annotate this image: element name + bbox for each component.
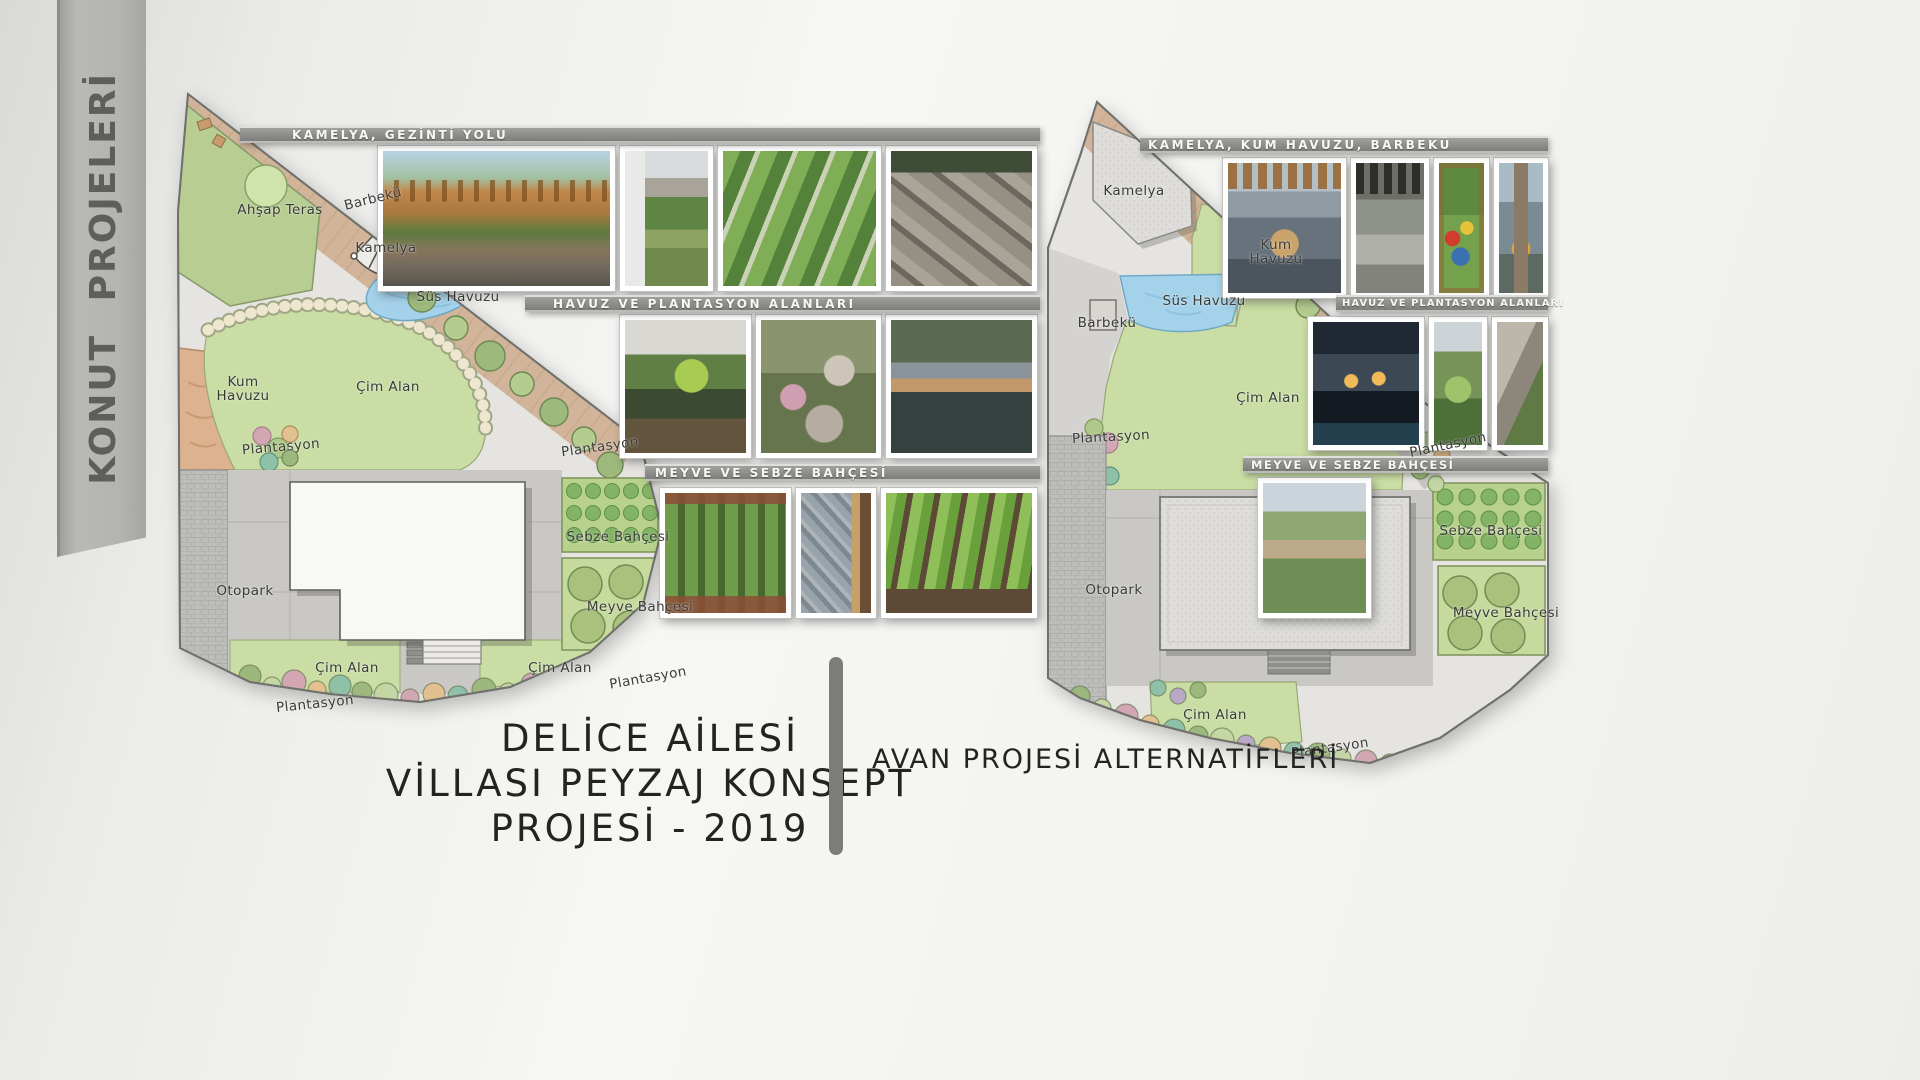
photo-night-cabin-pool xyxy=(1308,317,1424,450)
photo-pergola-patio-image xyxy=(383,151,610,286)
label-cim-alan-right-bottom: Çim Alan xyxy=(1183,707,1247,723)
photo-pergola-lounge xyxy=(1351,158,1429,298)
photo-sandbox xyxy=(1434,158,1489,298)
label-cim-alan-left-bottom2: Çim Alan xyxy=(528,660,592,676)
label-cim-alan-left-bottom1: Çim Alan xyxy=(315,660,379,676)
project-title-line3: PROJESİ - 2019 xyxy=(330,806,970,851)
photo-stone-path-image xyxy=(891,151,1032,286)
photo-curved-walkway-image xyxy=(1497,322,1543,445)
photo-water-feature-bench xyxy=(886,315,1037,458)
photo-garden-path-house xyxy=(1258,478,1371,618)
photo-night-cabin-pool-image xyxy=(1313,322,1419,445)
photo-roof-terrace-image xyxy=(1228,163,1341,293)
label-kum-havuzu-right: Kum Havuzu xyxy=(1248,238,1304,266)
photo-rock-garden xyxy=(756,315,881,458)
label-cim-alan-left-main: Çim Alan xyxy=(356,379,420,395)
photo-house-side-path-image xyxy=(625,151,708,286)
footer-divider-bar xyxy=(829,657,843,855)
photo-outdoor-fireplace xyxy=(1494,158,1548,298)
footer-subtitle: AVAN PROJESİ ALTERNATİFLERİ xyxy=(872,744,1339,775)
label-ahsap-teras: Ahşap Teras xyxy=(237,202,322,218)
photo-pergola-patio xyxy=(378,146,615,291)
photo-vegetable-rows-image xyxy=(665,493,786,613)
photo-shrub-garden-image xyxy=(1434,322,1482,445)
photo-pergola-lounge-image xyxy=(1356,163,1424,293)
label-meyve-bahcesi-right: Meyve Bahçesi xyxy=(1453,605,1559,621)
side-banner-text: KONUT PROJELERİ xyxy=(83,72,124,485)
left-strip-1-text: KAMELYA, GEZİNTİ YOLU xyxy=(240,128,508,142)
right-strip-havuz-plantasyon: HAVUZ VE PLANTASYON ALANLARI xyxy=(1336,295,1548,312)
photo-lettuce-garden xyxy=(881,488,1037,618)
right-strip-meyve-sebze: MEYVE VE SEBZE BAHÇESİ xyxy=(1243,456,1548,473)
project-title: DELİCE AİLESİ VİLLASI PEYZAJ KONSEPT PRO… xyxy=(330,716,970,851)
photo-rock-garden-image xyxy=(761,320,876,453)
side-banner: KONUT PROJELERİ xyxy=(57,0,146,557)
left-strip-2-text: HAVUZ VE PLANTASYON ALANLARI xyxy=(525,297,856,311)
label-cim-alan-right-main: Çim Alan xyxy=(1236,390,1300,406)
label-otopark-left: Otopark xyxy=(216,583,273,599)
photo-gravel-bed xyxy=(796,488,876,618)
photo-stone-path xyxy=(886,146,1037,291)
label-kum-havuzu-left: Kum Havuzu xyxy=(215,375,271,403)
label-sebze-bahcesi-left: Sebze Bahçesi xyxy=(567,529,670,545)
photo-lettuce-garden-image xyxy=(886,493,1032,613)
photo-sandbox-image xyxy=(1439,163,1484,293)
photo-gravel-bed-image xyxy=(801,493,871,613)
right-strip-1-text: KAMELYA, KUM HAVUZU, BARBEKÜ xyxy=(1140,138,1452,152)
photo-garden-path-house-image xyxy=(1263,483,1366,613)
right-strip-2-text: HAVUZ VE PLANTASYON ALANLARI xyxy=(1336,298,1564,309)
label-otopark-right: Otopark xyxy=(1085,582,1142,598)
label-kamelya-left: Kamelya xyxy=(355,240,416,256)
right-strip-3-text: MEYVE VE SEBZE BAHÇESİ xyxy=(1243,458,1454,472)
label-sebze-bahcesi-right: Sebze Bahçesi xyxy=(1440,523,1543,539)
label-barbeku-right: Barbekü xyxy=(1078,315,1137,331)
photo-outdoor-fireplace-image xyxy=(1499,163,1543,293)
label-sus-havuzu-right: Süs Havuzu xyxy=(1162,293,1245,309)
left-strip-kamelya-gezinti: KAMELYA, GEZİNTİ YOLU xyxy=(240,126,1040,143)
label-kamelya-right: Kamelya xyxy=(1103,183,1164,199)
photo-garden-bed-image xyxy=(625,320,746,453)
left-strip-3-text: MEYVE VE SEBZE BAHÇESİ xyxy=(645,466,888,480)
label-sus-havuzu-left: Süs Havuzu xyxy=(416,289,499,305)
right-strip-kamelya-kum-barbeku: KAMELYA, KUM HAVUZU, BARBEKÜ xyxy=(1140,136,1548,153)
photo-grass-pattern-image xyxy=(723,151,876,286)
left-strip-meyve-sebze: MEYVE VE SEBZE BAHÇESİ xyxy=(645,464,1040,481)
photo-grass-pattern xyxy=(718,146,881,291)
photo-garden-bed xyxy=(620,315,751,458)
label-meyve-bahcesi-left: Meyve Bahçesi xyxy=(587,599,693,615)
photo-house-side-path xyxy=(620,146,713,291)
photo-water-feature-bench-image xyxy=(891,320,1032,453)
photo-roof-terrace xyxy=(1223,158,1346,298)
presentation-board: KONUT PROJELERİ xyxy=(0,0,1920,1080)
left-strip-havuz-plantasyon: HAVUZ VE PLANTASYON ALANLARI xyxy=(525,295,1040,312)
photo-curved-walkway xyxy=(1492,317,1548,450)
